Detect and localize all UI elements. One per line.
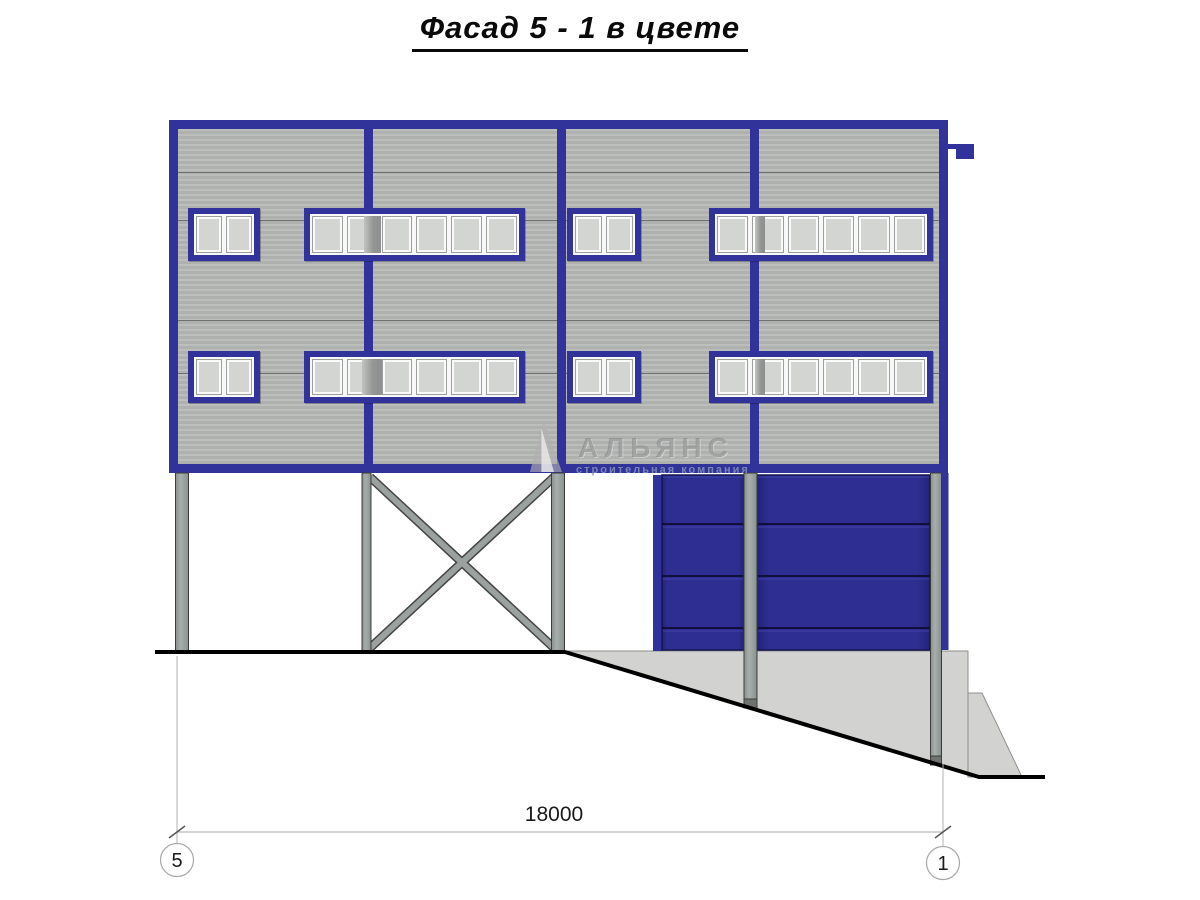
- window-pane: [416, 216, 447, 253]
- window-pane: [575, 216, 602, 253]
- gate-right: [757, 475, 930, 650]
- x-bracing: [370, 477, 554, 648]
- window-pane: [858, 359, 889, 395]
- window-frame: [194, 357, 254, 397]
- window-pane: [858, 216, 889, 253]
- window-pane: [312, 216, 343, 253]
- gate-left: [662, 475, 744, 650]
- window-strip: [304, 351, 525, 403]
- window-pane: [382, 216, 413, 253]
- window-frame: [194, 214, 254, 255]
- window-pane: [575, 359, 602, 395]
- structure-drawing: 18000 5 1: [0, 0, 1200, 900]
- window-pane: [312, 359, 343, 395]
- window-pane: [788, 216, 819, 253]
- column-1: [176, 473, 189, 652]
- window-frame: [715, 357, 927, 397]
- window-pane: [717, 359, 748, 395]
- drawing-canvas: Фасад 5 - 1 в цвете: [0, 0, 1200, 900]
- window-pane: [382, 359, 413, 395]
- window-pane: [416, 359, 447, 395]
- window-pane: [226, 359, 252, 395]
- window-frame: [310, 214, 519, 255]
- window-frame: [573, 214, 635, 255]
- window-strip: [709, 208, 933, 261]
- gates: [662, 475, 930, 650]
- gate-right-jamb: [942, 473, 949, 650]
- window-open-sash-shade: [362, 359, 382, 395]
- window-pane: [823, 216, 854, 253]
- window-pane: [894, 216, 925, 253]
- gate-left-jamb: [653, 475, 662, 651]
- window-pane: [823, 359, 854, 395]
- window-pane: [717, 216, 748, 253]
- facade-mullion: [557, 129, 566, 464]
- column-3: [552, 473, 565, 652]
- window-small: [188, 351, 260, 403]
- window-pane: [606, 216, 633, 253]
- window-open-sash-shade: [755, 359, 765, 395]
- concrete-foundation: [565, 651, 1022, 777]
- axis-label-5: 5: [171, 850, 182, 872]
- window-pane: [196, 359, 222, 395]
- window-pane: [486, 216, 517, 253]
- window-frame: [715, 214, 927, 255]
- column-5: [931, 473, 942, 764]
- window-frame: [573, 357, 635, 397]
- window-pane: [486, 359, 517, 395]
- window-pane: [451, 216, 482, 253]
- window-open-sash-shade: [364, 216, 381, 253]
- window-pane: [606, 359, 633, 395]
- concrete-step: [968, 693, 1022, 777]
- window-pane: [894, 359, 925, 395]
- window-pane: [788, 359, 819, 395]
- window-pane: [451, 359, 482, 395]
- facade-mullion: [750, 129, 759, 464]
- window-pane: [196, 216, 222, 253]
- window-open-sash-shade: [755, 216, 765, 253]
- window-strip: [709, 351, 933, 403]
- window-small: [188, 208, 260, 261]
- window-small: [567, 351, 641, 403]
- window-pane: [226, 216, 252, 253]
- column-4: [744, 473, 757, 707]
- axis-label-1: 1: [937, 853, 948, 875]
- window-frame: [310, 357, 519, 397]
- column-2: [362, 473, 371, 652]
- dimension-value: 18000: [525, 803, 583, 826]
- window-strip: [304, 208, 525, 261]
- window-small: [567, 208, 641, 261]
- facade-mullion: [364, 129, 373, 464]
